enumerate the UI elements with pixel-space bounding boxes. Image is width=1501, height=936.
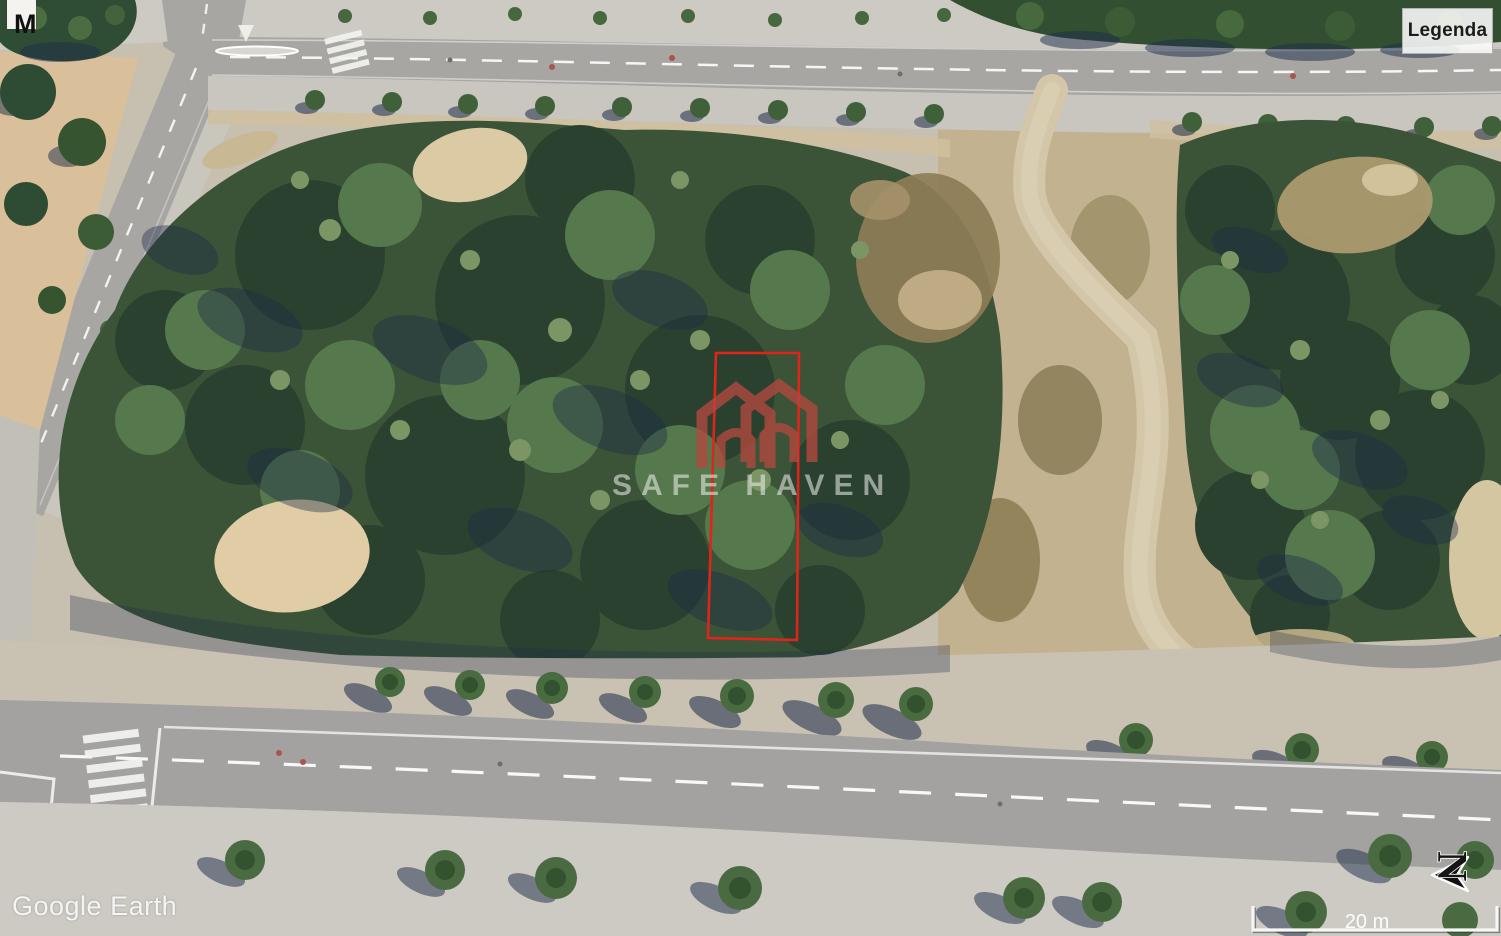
- scale-bar-label: 20 m: [1345, 911, 1389, 933]
- vegetation-parcel-left: [59, 118, 1003, 670]
- placemark-label[interactable]: M: [14, 11, 37, 38]
- north-label: N: [1428, 851, 1474, 881]
- google-earth-watermark: Google Earth: [12, 891, 177, 922]
- map-canvas[interactable]: N 20 m: [0, 0, 1501, 936]
- safe-haven-watermark: SAFE HAVEN: [612, 470, 912, 502]
- google-earth-viewport: N 20 m M SAFE HAVEN Legenda Google Earth: [0, 0, 1501, 936]
- vegetation-parcel-right: [1177, 120, 1501, 661]
- legend-button[interactable]: Legenda: [1402, 8, 1493, 54]
- aerial-imagery: N 20 m: [0, 0, 1501, 936]
- scrub-patch: [1018, 365, 1102, 475]
